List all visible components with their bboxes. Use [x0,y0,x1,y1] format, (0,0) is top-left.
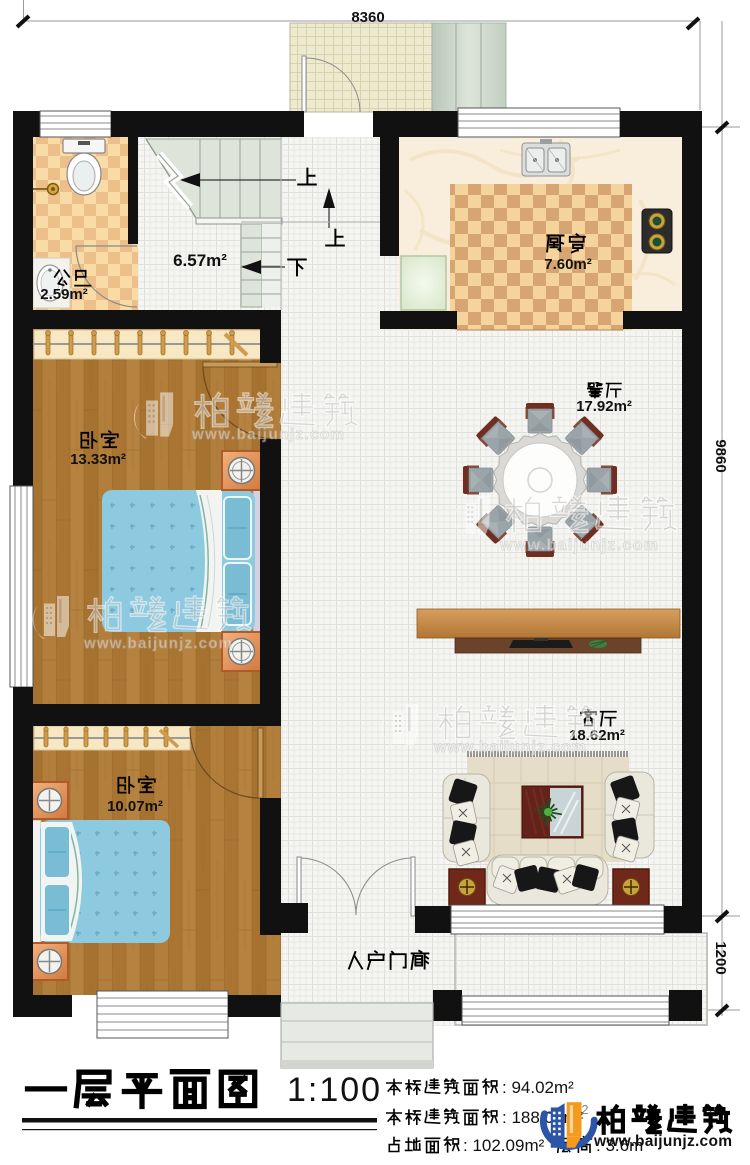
svg-text:www.baijunjz.com: www.baijunjz.com [433,739,586,756]
svg-text:10.07m²: 10.07m² [107,798,163,815]
svg-text:www.baijunjz.com: www.baijunjz.com [593,1133,732,1150]
svg-text:www.baijunjz.com: www.baijunjz.com [83,635,232,652]
svg-text:www.baijunjz.com: www.baijunjz.com [499,537,658,554]
svg-text:2.59m²: 2.59m² [40,286,88,303]
svg-text:2: 2 [582,1102,589,1117]
svg-text:9860: 9860 [712,439,729,472]
svg-text:: 94.02m²: : 94.02m² [502,1078,574,1097]
svg-text:: 102.09m²: : 102.09m² [463,1136,545,1155]
svg-text:6.57m²: 6.57m² [173,251,227,270]
svg-text:13.33m²: 13.33m² [70,451,126,468]
svg-text:1200: 1200 [712,941,729,974]
svg-text:www.baijunjz.com: www.baijunjz.com [191,426,344,443]
svg-text:1:100: 1:100 [287,1071,382,1109]
svg-text:7.60m²: 7.60m² [544,256,592,273]
svg-text:17.92m²: 17.92m² [576,398,632,415]
